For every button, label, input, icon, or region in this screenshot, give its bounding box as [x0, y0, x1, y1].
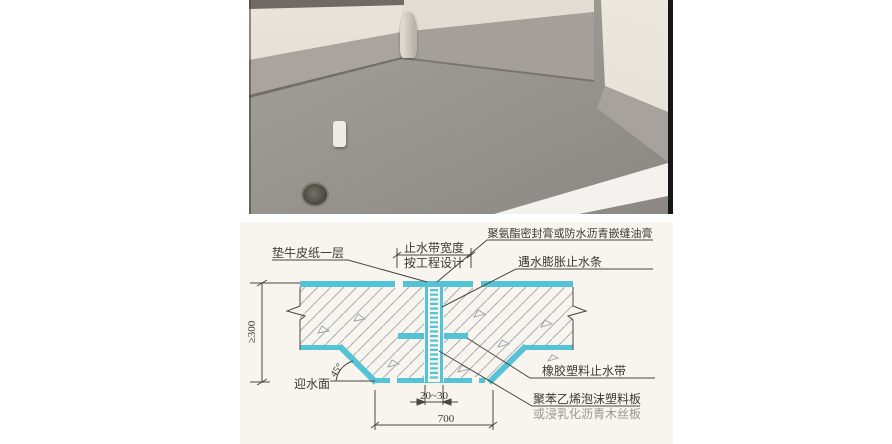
- detail-drawing-svg: 垫牛皮纸一层 止水带宽度 按工程设计 聚氨酯密封膏或防水沥青嵌缝油膏 遇水膨胀止…: [240, 222, 673, 444]
- label-sealant: 聚氨酯密封膏或防水沥青嵌缝油膏: [488, 226, 653, 240]
- corner-pipe: [400, 12, 417, 58]
- label-foam-board-line1: 聚苯乙烯泡沫塑料板: [533, 391, 641, 406]
- label-swelling-waterstop: 遇水膨胀止水条: [518, 255, 602, 269]
- floor-drain: [301, 182, 329, 207]
- label-water-facing-side: 迎水面: [294, 377, 330, 391]
- label-waterstop-width-line2: 按工程设计: [404, 255, 464, 270]
- membrane-dash-gap: [472, 377, 479, 384]
- expansion-joint: [424, 287, 444, 382]
- membrane-dash-gap: [390, 377, 397, 384]
- dim-text-bottom-width: 700: [438, 413, 455, 425]
- photo-right-frame-bar: [668, 0, 673, 214]
- photo-left-edge: [249, 0, 251, 214]
- label-foam-board-line2: 或浸乳化沥青木丝板: [533, 407, 641, 421]
- white-cup: [333, 121, 346, 147]
- joint-edge-left: [425, 287, 428, 382]
- label-kraft-paper: 垫牛皮纸一层: [272, 245, 344, 260]
- label-rubber-waterstop: 橡胶塑料止水带: [542, 363, 626, 378]
- bottom-membrane-left: [300, 345, 342, 350]
- membrane-dash-gap: [473, 280, 481, 288]
- bottom-membrane-right: [523, 345, 573, 350]
- dim-text-joint-width: 20~30: [420, 390, 448, 402]
- membrane-dash-gap: [395, 280, 403, 288]
- joint-edge-right: [440, 287, 443, 382]
- dim-text-thickness: ≥300: [246, 320, 258, 343]
- expansion-joint-waterproofing-detail: 垫牛皮纸一层 止水带宽度 按工程设计 聚氨酯密封膏或防水沥青嵌缝油膏 遇水膨胀止…: [240, 222, 673, 444]
- label-waterstop-width-line1: 止水带宽度: [404, 240, 464, 255]
- waterproofing-room-photo: [249, 0, 673, 214]
- dim-text-angle: 45°: [328, 362, 345, 380]
- page: 垫牛皮纸一层 止水带宽度 按工程设计 聚氨酯密封膏或防水沥青嵌缝油膏 遇水膨胀止…: [0, 0, 892, 444]
- top-membrane: [300, 281, 573, 287]
